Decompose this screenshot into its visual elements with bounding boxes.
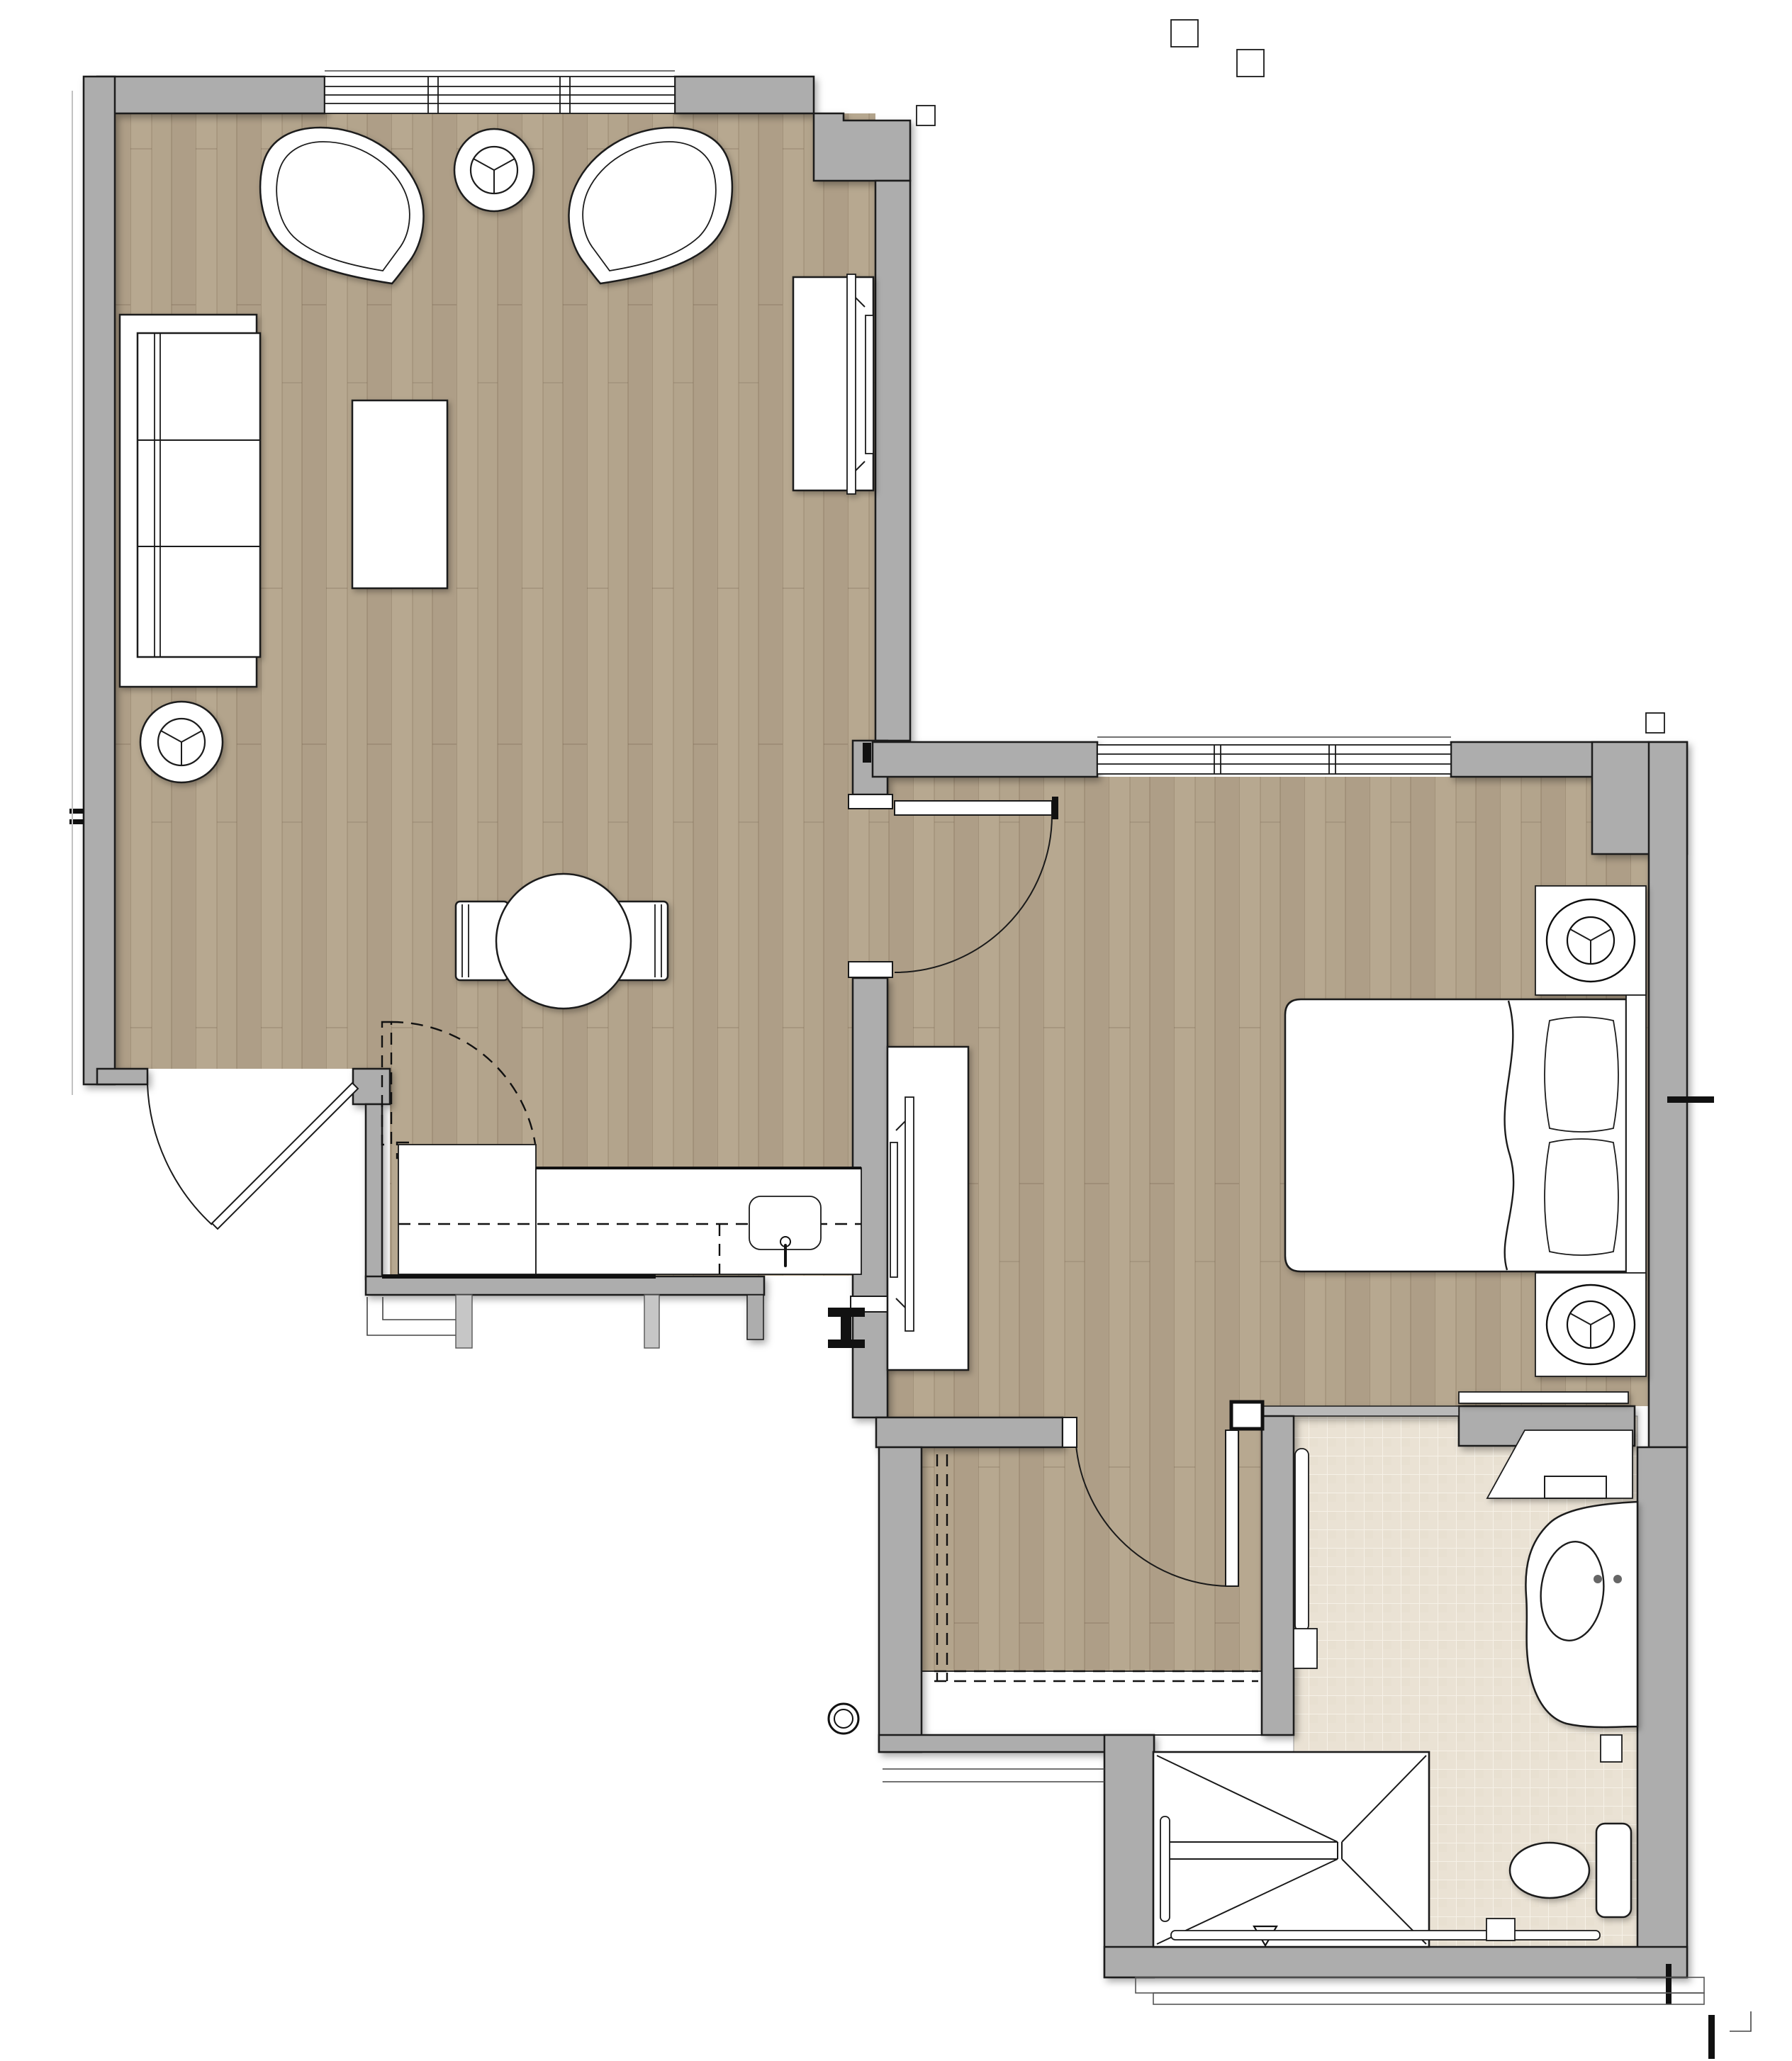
nightstand-lower: [1535, 1273, 1646, 1376]
toilet-bowl: [1510, 1843, 1589, 1898]
bedroom-top-wall-west: [873, 742, 1097, 777]
door-hinge-bracket: [1231, 1402, 1262, 1429]
tall-cabinet: [398, 1145, 536, 1274]
bedroom-right-wall: [1649, 742, 1687, 1447]
dresser: [887, 1047, 968, 1370]
round-side-table-top: [454, 129, 534, 211]
living-room-window: [325, 71, 675, 113]
bathroom-bottom-wall: [1104, 1947, 1687, 1977]
lr-right-wall: [875, 181, 910, 741]
entry-door-leaf: [212, 1083, 358, 1229]
wall-stub: [747, 1295, 763, 1340]
lr-top-wall-right: [675, 77, 814, 113]
coffee-table: [352, 400, 447, 588]
shower-grab-bar-left: [1160, 1816, 1170, 1921]
closet-door-leaf: [1226, 1430, 1238, 1586]
lr-left-wall: [84, 77, 115, 1084]
faucet-handle-dot: [1613, 1575, 1622, 1583]
vanity: [1525, 1502, 1637, 1727]
doorway-floor-strip: [853, 809, 887, 962]
tv-console: [793, 274, 873, 494]
shower-threshold-block: [1486, 1919, 1515, 1941]
outlet-box-4: [1646, 713, 1664, 733]
bedroom-door-leaf: [895, 801, 1052, 815]
bathroom-right-wall: [1637, 1447, 1687, 1977]
luggage-shelf: [1459, 1392, 1628, 1403]
round-column: [829, 1704, 858, 1734]
outlet-box-1: [917, 106, 935, 125]
shower-pan: [1153, 1752, 1429, 1947]
bed: [1285, 991, 1646, 1280]
tv-flatscreen: [847, 274, 856, 494]
entry-jamb-block: [353, 1069, 390, 1104]
floor-plan: [0, 0, 1792, 2061]
lr-ne-corner-wall: [814, 113, 910, 181]
closet-bathroom-wall: [1262, 1416, 1294, 1735]
tv-mount-plate: [866, 315, 873, 454]
grab-bar-bottom: [1171, 1931, 1600, 1940]
sofa: [120, 315, 260, 687]
pillow-lower: [1545, 1139, 1618, 1255]
tv-mount-plate: [890, 1142, 897, 1277]
lr-south-wall-west: [97, 1069, 147, 1084]
closet-west-wall: [879, 1447, 922, 1752]
closet-north-wall: [876, 1417, 1063, 1447]
kitchenette-south-wall: [366, 1276, 764, 1295]
toilet-tank: [1596, 1824, 1631, 1917]
closet-doorway-jamb-cap: [1063, 1417, 1077, 1447]
headboard: [1626, 991, 1646, 1280]
floor-plan-svg: [0, 0, 1792, 2061]
round-side-table-left: [140, 702, 223, 782]
bathroom-entry-header: [1262, 1406, 1459, 1416]
door-jamb-cap: [849, 794, 892, 809]
closet-wood-floor: [922, 1447, 1262, 1671]
door-strike-jamb: [1052, 797, 1058, 819]
shower-west-wall: [1104, 1735, 1154, 1977]
lr-top-wall-left: [97, 77, 325, 113]
flush-plate: [1601, 1735, 1622, 1762]
nightstand-upper: [1535, 886, 1646, 995]
kitchenette-west-wall: [366, 1104, 382, 1279]
tv-flatscreen-bedroom: [905, 1097, 914, 1331]
outlet-box-2: [1171, 20, 1198, 47]
bedroom-window: [1097, 737, 1451, 774]
dining-table-round: [496, 874, 631, 1009]
outlet-box-3: [1237, 50, 1264, 77]
entry-door: [147, 1083, 358, 1229]
faucet-handle-dot: [1594, 1575, 1602, 1583]
pillow-upper: [1545, 1017, 1618, 1132]
wall-accessory-block: [1294, 1629, 1317, 1668]
door-jamb-cap: [849, 962, 892, 977]
closet-back-band: [922, 1671, 1262, 1735]
